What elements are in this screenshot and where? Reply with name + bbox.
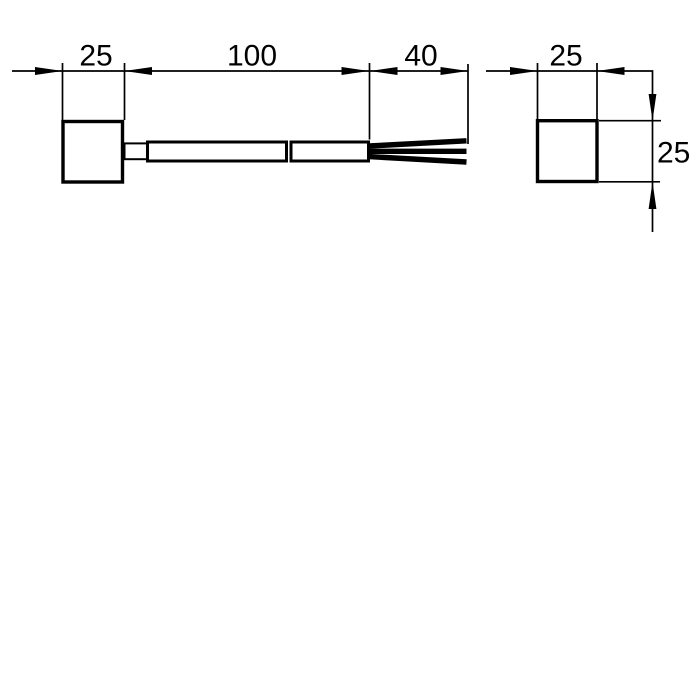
arrowhead-cable-end-right <box>370 67 398 75</box>
cable-neck <box>125 143 148 159</box>
dim-label-side-width: 25 <box>549 40 582 73</box>
dim-label-body-width: 25 <box>79 40 112 73</box>
arrowhead-square-left <box>510 67 538 75</box>
dimensional-drawing: 25 100 40 25 25 <box>0 0 700 700</box>
dim-label-wire-length: 40 <box>404 40 437 73</box>
wire-strand-top <box>369 141 467 146</box>
dim-label-side-height: 25 <box>657 137 690 170</box>
square-end-face-outline <box>538 121 598 182</box>
arrowhead-height-top <box>649 94 657 121</box>
dim-label-cable-length: 100 <box>227 40 277 73</box>
front-view: 25 100 40 <box>12 40 468 183</box>
arrowhead-cable-end-left <box>342 67 370 75</box>
sensor-body-outline <box>63 122 123 183</box>
technical-drawing-canvas: 25 100 40 25 25 <box>0 0 700 700</box>
arrowhead-square-right <box>597 67 625 75</box>
side-view: 25 25 <box>486 40 690 233</box>
arrowhead-height-bottom <box>649 182 657 209</box>
wire-strand-bottom <box>369 157 467 162</box>
cable-jacket-segment-2 <box>291 142 369 161</box>
arrowhead-body-right <box>125 67 153 75</box>
arrowhead-wire-end <box>441 67 469 75</box>
arrowhead-left-outside <box>35 67 63 75</box>
cable-jacket-segment-1 <box>148 142 287 161</box>
